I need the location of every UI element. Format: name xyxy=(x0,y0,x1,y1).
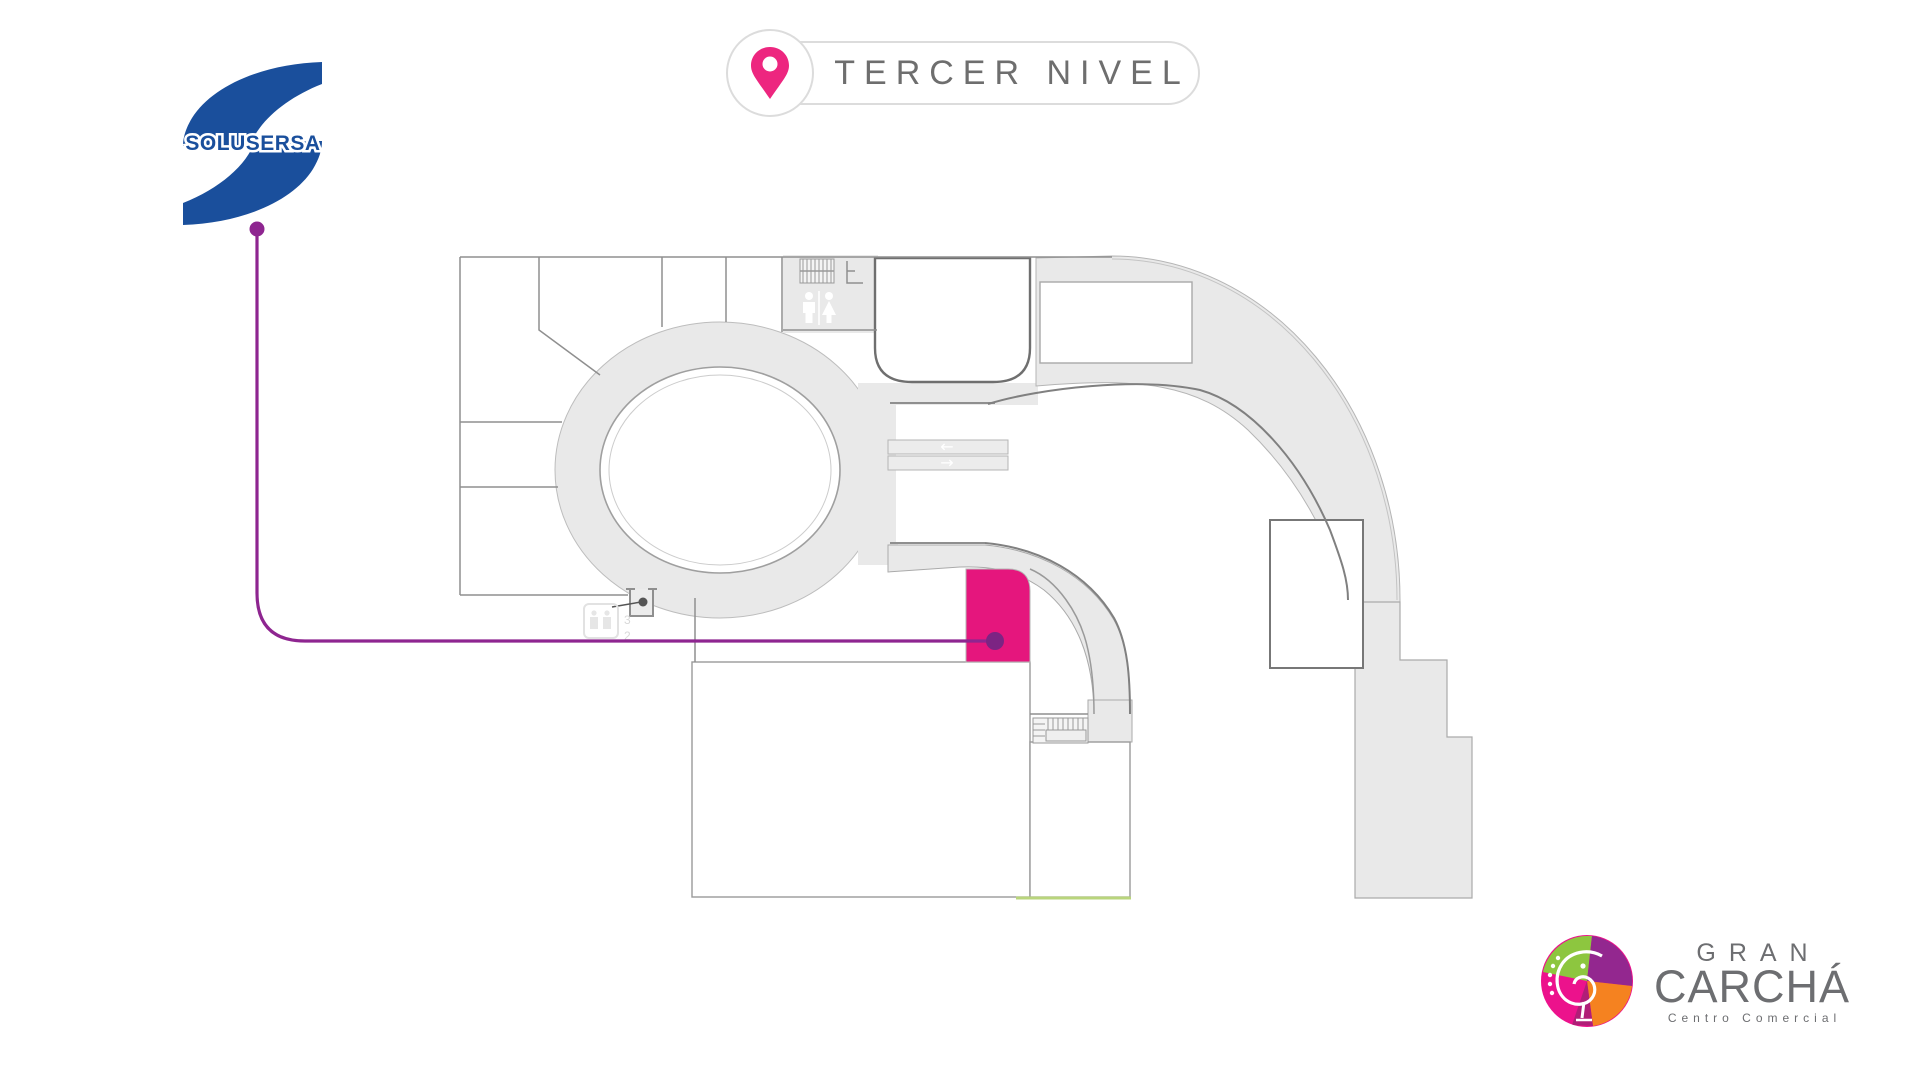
escalator-down-arrow: → xyxy=(940,453,953,472)
gran-carcha-emblem xyxy=(1540,934,1634,1028)
elevator-level-current: 3 xyxy=(624,613,631,627)
store-brand-logo: SOLUSERSA xyxy=(178,56,338,231)
right-corridor xyxy=(1355,602,1472,898)
solusersa-logo: SOLUSERSA xyxy=(178,56,338,231)
arc-store xyxy=(1040,282,1192,363)
map-pin-icon xyxy=(749,45,791,101)
stairs-top-icon xyxy=(800,259,834,283)
rounded-room xyxy=(875,258,1030,382)
mall-name-main: CARCHÁ xyxy=(1652,966,1852,1008)
elevator-icon: 3 2 xyxy=(584,604,631,643)
level-badge-label: TERCER NIVEL xyxy=(834,54,1190,93)
level-badge: TERCER NIVEL xyxy=(762,41,1200,105)
mall-name-block: GRAN CARCHÁ Centro Comercial xyxy=(1652,934,1852,1026)
mall-tagline: Centro Comercial xyxy=(1652,1010,1852,1026)
restroom-icon xyxy=(803,291,836,325)
store-brand-name: SOLUSERSA xyxy=(185,132,320,155)
leader-end-dot xyxy=(986,632,1004,650)
level-badge-circle xyxy=(726,29,814,117)
ring-inner-void xyxy=(600,367,840,573)
mall-directory-screen: ← → 3 2 TERCER NIVE xyxy=(0,0,1920,1080)
escalator-icon: ← → xyxy=(888,437,1008,472)
stairs-bottom-icon xyxy=(1033,718,1088,743)
right-store xyxy=(1270,520,1363,668)
anchor-space xyxy=(692,662,1030,897)
lower-room xyxy=(1030,742,1130,897)
mall-logo: GRAN CARCHÁ Centro Comercial xyxy=(1540,934,1870,1044)
